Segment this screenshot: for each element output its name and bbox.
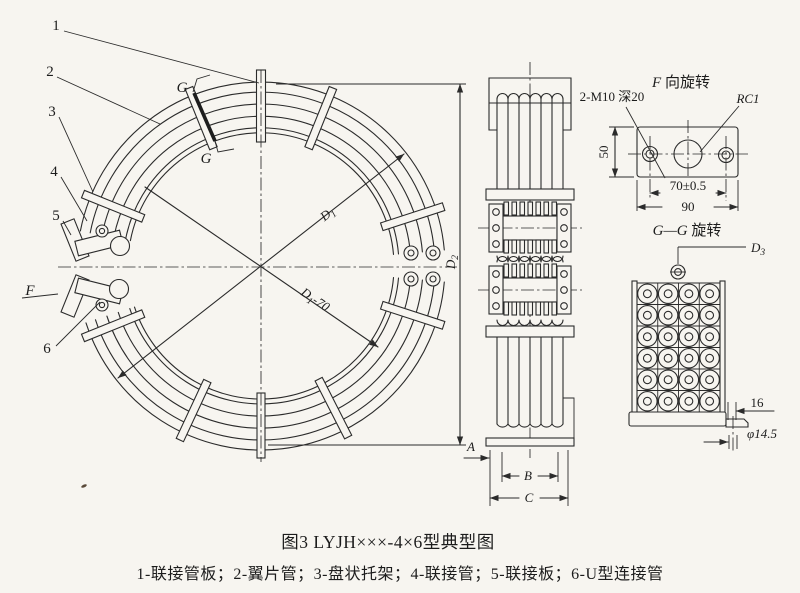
- bolt-hole: [561, 271, 568, 278]
- fin-tooth: [520, 240, 525, 253]
- fin-tooth: [552, 302, 557, 315]
- tray-right-wall: [720, 281, 725, 424]
- dim-a-label: A: [466, 439, 475, 454]
- d2-label: D2: [443, 255, 461, 270]
- dim-50-label: 50: [596, 146, 611, 159]
- dim-c-label: C: [525, 490, 534, 505]
- fin-tooth: [512, 264, 517, 277]
- bolt-hole: [493, 303, 500, 310]
- u-tube-end-lower: [110, 280, 129, 299]
- part-label-5: 5: [52, 208, 60, 224]
- disc-bracket: [176, 379, 211, 441]
- disc-bracket: [305, 86, 337, 149]
- bottom-u-bends: [497, 424, 563, 427]
- fin-tooth: [520, 302, 525, 315]
- part-label-6: 6: [43, 341, 51, 357]
- part-label-4: 4: [50, 164, 58, 180]
- bolt-hole: [561, 287, 568, 294]
- scan-speck: [81, 483, 88, 488]
- fin-tooth: [512, 302, 517, 315]
- fin-tooth: [520, 264, 525, 277]
- fin-tooth: [528, 264, 533, 277]
- rc1-label: RC1: [735, 91, 759, 106]
- dim-16-label: 16: [751, 395, 765, 410]
- part-leaders: [22, 31, 259, 346]
- f-view-title: F 向旋转: [651, 74, 710, 91]
- tray-flange: [726, 419, 748, 427]
- bolt-hole: [561, 209, 568, 216]
- u-tube-end-upper: [111, 237, 130, 256]
- f-rotated-view: [609, 106, 748, 211]
- bolt-hole: [561, 241, 568, 248]
- fin-tooth: [544, 302, 549, 315]
- ring-plan-view: [80, 70, 444, 458]
- disc-bracket: [81, 310, 144, 342]
- disc-bracket: [81, 190, 144, 222]
- fin-tooth: [536, 264, 541, 277]
- tray-bottom-bar: [629, 412, 726, 426]
- part-label-3: 3: [48, 104, 56, 120]
- bolt-hole: [561, 225, 568, 232]
- part-label-2: 2: [46, 64, 54, 80]
- fin-tooth: [512, 202, 517, 215]
- fin-tooth: [504, 240, 509, 253]
- dim-phi-label: φ14.5: [747, 426, 777, 441]
- fin-tooth: [544, 264, 549, 277]
- bolt-hole: [493, 241, 500, 248]
- bolt-hole: [561, 303, 568, 310]
- fin-tooth: [536, 202, 541, 215]
- f-view-arrow-label: F: [24, 283, 35, 299]
- g-section-label-lower: G: [201, 151, 212, 167]
- clamp-band: [486, 326, 574, 337]
- fin-tooth: [536, 302, 541, 315]
- fin-tooth: [552, 240, 557, 253]
- fin-tooth: [504, 302, 509, 315]
- left-connection-fittings: [61, 219, 129, 317]
- bolt-hole: [493, 287, 500, 294]
- fin-tooth: [512, 240, 517, 253]
- bolt-hole: [493, 209, 500, 216]
- engineering-drawing: 1 2 3 4 5 6 F G G D1 D1-70 D2 A B C: [0, 0, 800, 593]
- fin-tooth: [536, 240, 541, 253]
- gg-view-title: G—G 旋转: [653, 222, 722, 239]
- fin-tooth: [552, 202, 557, 215]
- tray-left-wall: [632, 281, 637, 424]
- dim-90-label: 90: [682, 199, 695, 214]
- disc-bracket: [185, 86, 217, 149]
- fin-tooth: [552, 264, 557, 277]
- dim-70-label: 70±0.5: [670, 178, 706, 193]
- abc-dimensions: [464, 450, 568, 506]
- fin-tooth: [504, 202, 509, 215]
- figure-legend: 1-联接管板；2-翼片管；3-盘状托架；4-联接管；5-联接板；6-U型连接管: [136, 564, 663, 583]
- fin-tooth: [504, 264, 509, 277]
- d3-label: D3: [750, 240, 765, 258]
- bolt-hole: [493, 225, 500, 232]
- dim-b-label: B: [524, 468, 532, 483]
- fin-tooth: [528, 302, 533, 315]
- figure-caption: 图3 LYJH×××-4×6型典型图: [281, 532, 494, 552]
- side-elevation-view: [478, 62, 582, 458]
- gg-rotated-view: [629, 281, 748, 427]
- fin-tooth: [544, 202, 549, 215]
- g-section-label-upper: G: [177, 80, 188, 96]
- clamp-band: [486, 189, 574, 200]
- fin-tooth: [544, 240, 549, 253]
- part-label-1: 1: [52, 18, 60, 34]
- bolt-hole: [493, 271, 500, 278]
- thread-note: 2-M10 深20: [580, 89, 645, 104]
- bottom-bar: [486, 438, 574, 446]
- fin-tooth: [528, 202, 533, 215]
- fin-tooth: [520, 202, 525, 215]
- fin-tooth: [528, 240, 533, 253]
- finned-tube-arc: [135, 278, 394, 399]
